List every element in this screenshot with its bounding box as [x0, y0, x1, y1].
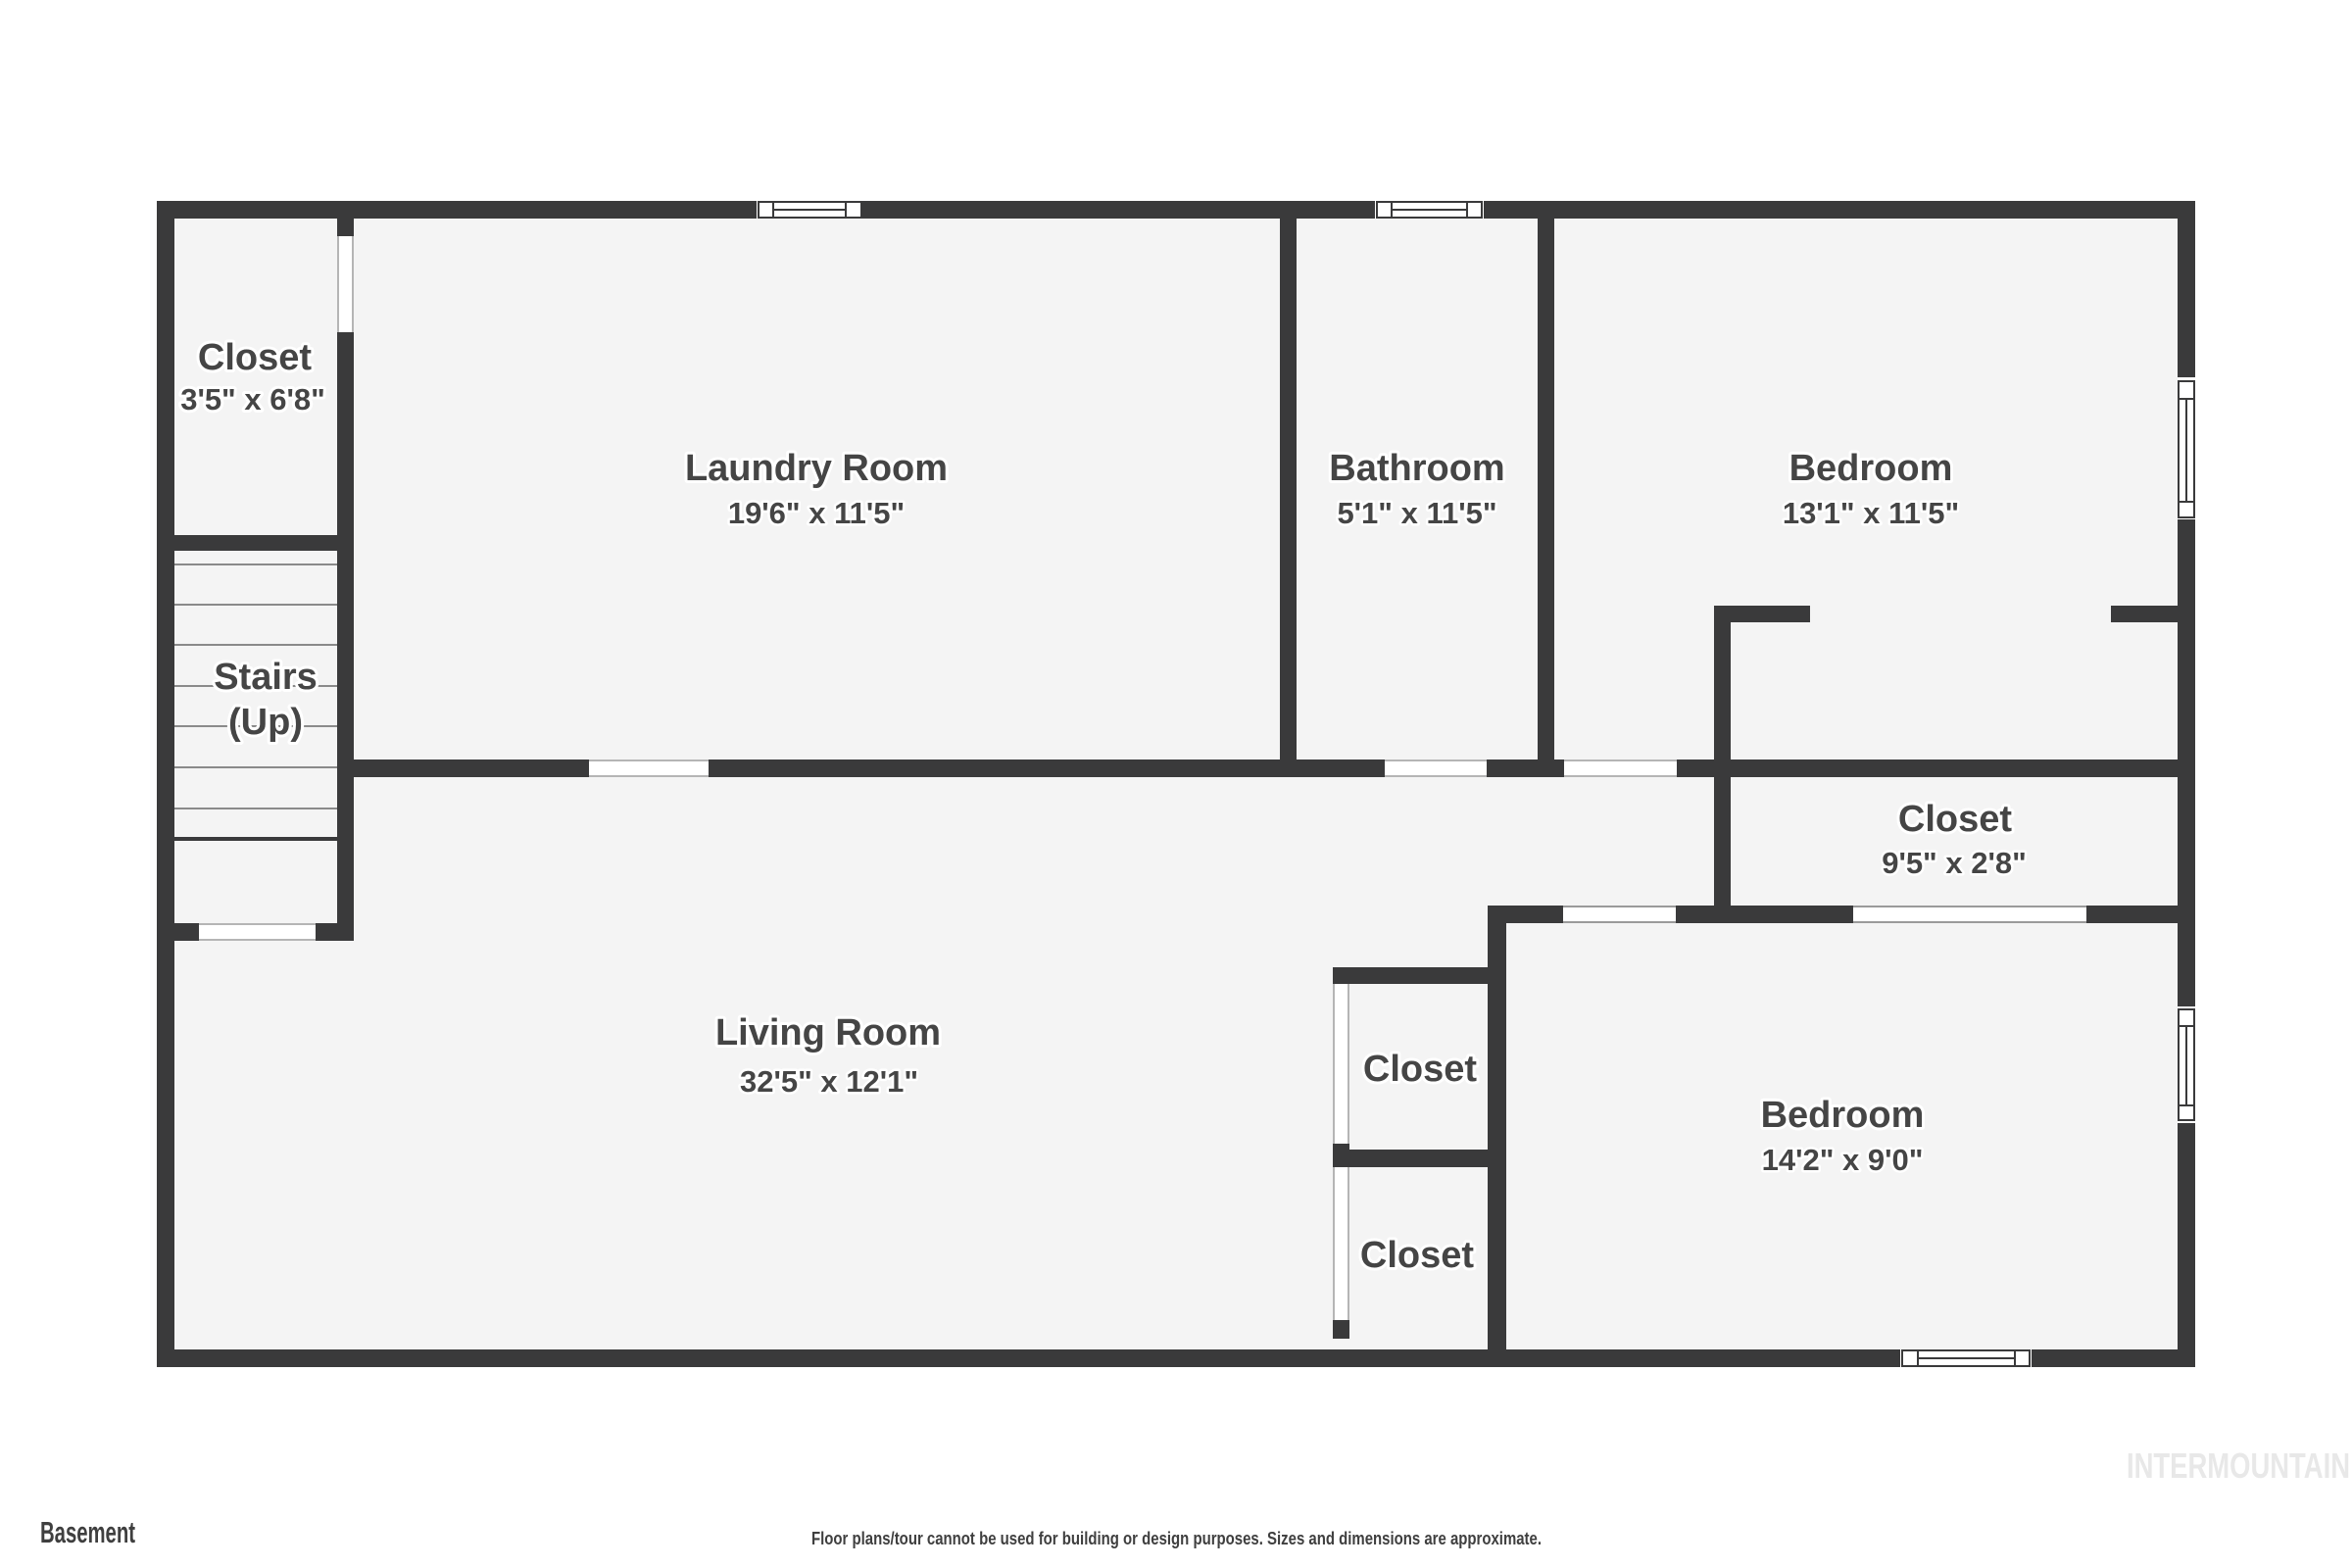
- svg-text:Living Room: Living Room: [715, 1012, 941, 1053]
- svg-text:5'1" x 11'5": 5'1" x 11'5": [1337, 496, 1496, 530]
- svg-text:19'6" x 11'5": 19'6" x 11'5": [728, 496, 905, 530]
- svg-text:Basement: Basement: [40, 1515, 135, 1549]
- svg-text:(Up): (Up): [228, 702, 303, 743]
- svg-text:Closet: Closet: [1363, 1049, 1477, 1090]
- svg-text:3'5" x 6'8": 3'5" x 6'8": [180, 382, 325, 416]
- svg-text:Bedroom: Bedroom: [1761, 1095, 1925, 1136]
- svg-text:32'5" x 12'1": 32'5" x 12'1": [740, 1064, 918, 1099]
- svg-text:Floor plans/tour cannot be use: Floor plans/tour cannot be used for buil…: [811, 1529, 1542, 1548]
- svg-text:13'1" x 11'5": 13'1" x 11'5": [1783, 496, 1959, 530]
- svg-text:Bedroom: Bedroom: [1789, 448, 1953, 489]
- svg-text:Stairs: Stairs: [214, 657, 318, 698]
- svg-text:9'5" x 2'8": 9'5" x 2'8": [1882, 846, 2027, 880]
- svg-text:Closet: Closet: [1898, 799, 2012, 840]
- svg-text:Laundry Room: Laundry Room: [685, 448, 948, 489]
- svg-text:14'2" x 9'0": 14'2" x 9'0": [1762, 1143, 1924, 1177]
- svg-text:Closet: Closet: [198, 337, 312, 378]
- svg-text:Bathroom: Bathroom: [1329, 448, 1504, 489]
- svg-text:Closet: Closet: [1360, 1235, 1474, 1276]
- svg-text:INTERMOUNTAIN: INTERMOUNTAIN: [2127, 1445, 2350, 1486]
